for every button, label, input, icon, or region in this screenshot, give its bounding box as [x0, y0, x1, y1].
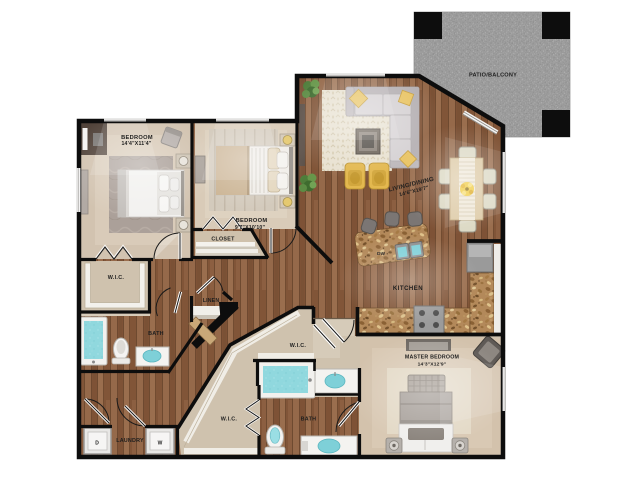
svg-text:W.I.C.: W.I.C. — [108, 275, 125, 281]
svg-text:LINEN: LINEN — [203, 298, 220, 304]
svg-text:W: W — [158, 441, 163, 447]
svg-text:9'7"X10'10": 9'7"X10'10" — [235, 225, 266, 231]
svg-text:14'4"X11'4": 14'4"X11'4" — [121, 141, 151, 147]
svg-text:14'3"X12'9": 14'3"X12'9" — [418, 362, 447, 368]
svg-text:CLOSET: CLOSET — [211, 237, 235, 243]
svg-text:W.I.C.: W.I.C. — [290, 343, 307, 349]
svg-text:BEDROOM: BEDROOM — [236, 218, 268, 224]
svg-text:BATH: BATH — [148, 331, 164, 337]
svg-text:KITCHEN: KITCHEN — [393, 286, 423, 292]
svg-text:LAUNDRY: LAUNDRY — [116, 438, 144, 444]
svg-text:PATIO/BALCONY: PATIO/BALCONY — [469, 73, 517, 79]
svg-text:W.I.C.: W.I.C. — [221, 417, 238, 423]
svg-text:D: D — [95, 441, 99, 447]
svg-text:BATH: BATH — [301, 417, 317, 423]
svg-text:MASTER BEDROOM: MASTER BEDROOM — [405, 355, 460, 361]
